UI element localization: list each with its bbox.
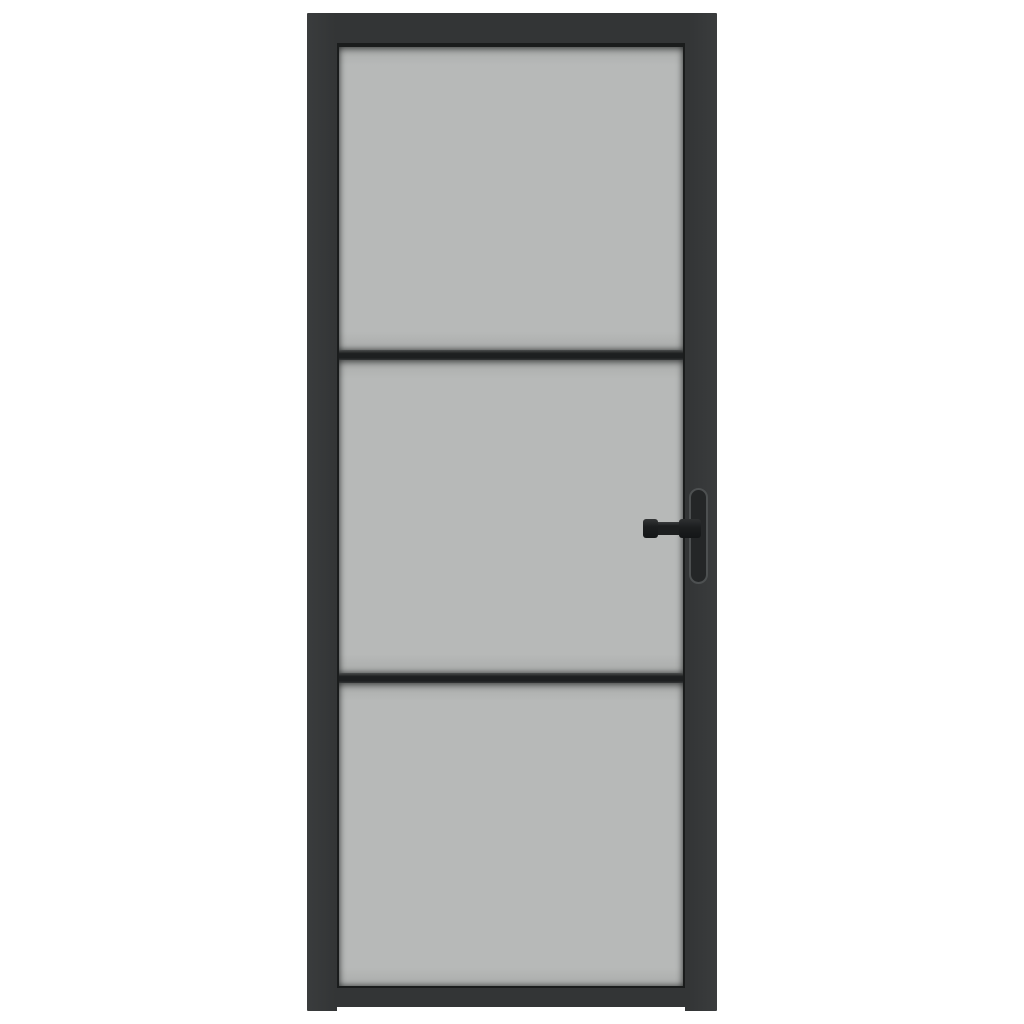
handle-backplate xyxy=(689,488,708,584)
glass-pane-middle xyxy=(339,360,683,673)
door-glass xyxy=(337,43,685,988)
product-photo xyxy=(0,0,1024,1024)
glazing-bar-lower xyxy=(339,673,683,683)
glass-pane-top xyxy=(339,47,683,350)
glazing-bar-upper xyxy=(339,350,683,360)
door xyxy=(307,13,717,1011)
frame-bottom-gap xyxy=(337,1007,685,1011)
glass-pane-bottom xyxy=(339,683,683,986)
